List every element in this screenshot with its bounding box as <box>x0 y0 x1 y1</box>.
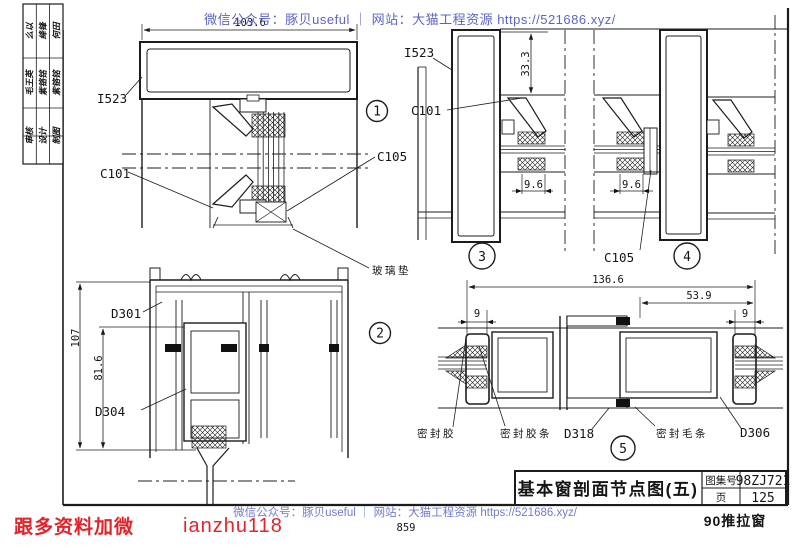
watermark-top: 微信公众号：豚贝useful ｜ 网站：大猫工程资源 https://52168… <box>204 12 616 27</box>
detail-3-callout-c101: C101 <box>411 103 441 118</box>
page-label: 页 <box>716 492 727 504</box>
detail-5-dim-total: 136.6 <box>592 274 624 286</box>
detail-5-dim-left: 9 <box>474 308 480 320</box>
detail-3-dim-w: 9.6 <box>524 179 543 191</box>
strip-name-cell-2: 紫铬铭 <box>38 69 48 96</box>
detail-5-dim-half: 53.9 <box>686 290 711 302</box>
atlas-number-value: 98ZJ721 <box>736 474 791 489</box>
detail-2-seal-block <box>329 344 339 352</box>
strip-field-cell-2: 设计 <box>38 126 48 145</box>
detail-1-callout-i523: I523 <box>97 91 127 106</box>
detail-1-callout-c105: C105 <box>377 149 407 164</box>
detail-3-callout-i523: I523 <box>404 45 434 60</box>
sheet-caption: 90推拉窗 <box>704 513 767 529</box>
watermark-bottom: 微信公众号：豚贝useful ｜ 网站：大猫工程资源 https://52168… <box>233 505 578 519</box>
strip-name-cell-3: 紫铬铭 <box>51 69 61 96</box>
detail-5-seal-block-top <box>616 317 630 325</box>
atlas-page: 么以 绛锋 何田 毛王英 紫铬铭 紫铬铭 审核 设计 制图 103.6 <box>0 0 800 548</box>
detail-2-sill-section: 107 81.6 D301 D304 2 <box>70 268 391 505</box>
promo-wechat-handle: ianzhu118 <box>183 515 283 537</box>
drawing-canvas: 么以 绛锋 何田 毛王英 紫铬铭 紫铬铭 审核 设计 制图 103.6 <box>0 0 800 548</box>
detail-5-number: 5 <box>619 442 627 457</box>
atlas-number-label: 图集号 <box>705 474 737 487</box>
strip-signature-cell-1: 么以 <box>25 21 35 40</box>
detail-4-number: 4 <box>683 250 691 265</box>
strip-name-cell-1: 毛王英 <box>25 69 35 96</box>
detail-5-callout-d306: D306 <box>740 425 770 440</box>
detail-4-dim-w: 9.6 <box>622 179 641 191</box>
sheet-serial-number: 859 <box>397 522 416 534</box>
drawing-title: 基本窗剖面节点图(五) <box>517 479 699 499</box>
detail-5-callout-sealant: 密封胶 <box>417 427 456 440</box>
strip-signature-cell-2: 绛锋 <box>38 21 48 40</box>
strip-signature-cell-3: 何田 <box>51 21 61 40</box>
detail-1-head-section: 103.6 1 I523 C101 C105 玻 <box>97 17 411 277</box>
detail-2-number: 2 <box>376 327 384 342</box>
detail-4-callout-c105: C105 <box>604 250 634 265</box>
detail-2-callout-d301: D301 <box>111 306 141 321</box>
detail-3-jamb-section: 33.3 9.6 3 I523 C101 <box>404 30 565 269</box>
detail-1-callout-c101: C101 <box>100 166 130 181</box>
detail-2-dim-inner: 81.6 <box>93 355 105 380</box>
detail-5-seal-block-bottom <box>616 399 630 407</box>
detail-5-meeting-stile: 136.6 53.9 9 9 密封胶 <box>417 274 783 460</box>
title-strip: 么以 绛锋 何田 毛王英 紫铬铭 紫铬铭 审核 设计 制图 <box>23 4 63 164</box>
title-block: 基本窗剖面节点图(五) 图集号 98ZJ721 页 125 90推拉窗 <box>515 471 790 529</box>
detail-2-dim-outer: 107 <box>70 329 82 348</box>
promo-text: 跟多资料加微 <box>14 515 134 538</box>
strip-field-cell-3: 制图 <box>51 126 61 145</box>
page-number-value: 125 <box>751 491 774 506</box>
detail-3-number: 3 <box>478 250 486 265</box>
detail-5-dim-right: 9 <box>742 308 748 320</box>
detail-5-callout-d318: D318 <box>564 426 594 441</box>
detail-2-seal-block <box>259 344 269 352</box>
detail-1-number: 1 <box>373 105 381 120</box>
detail-2-seal-block <box>221 344 237 352</box>
detail-5-callout-wool: 密封毛条 <box>656 427 708 440</box>
detail-3-dim-top: 33.3 <box>520 51 532 76</box>
detail-4-mullion-section: 9.6 4 C105 <box>594 15 775 269</box>
detail-2-seal-block <box>165 344 181 352</box>
detail-5-callout-gasket: 密封胶条 <box>500 427 552 440</box>
detail-2-callout-d304: D304 <box>95 404 125 419</box>
detail-1-callout-glass-pad: 玻璃垫 <box>372 264 411 277</box>
strip-field-cell-1: 审核 <box>25 126 35 145</box>
